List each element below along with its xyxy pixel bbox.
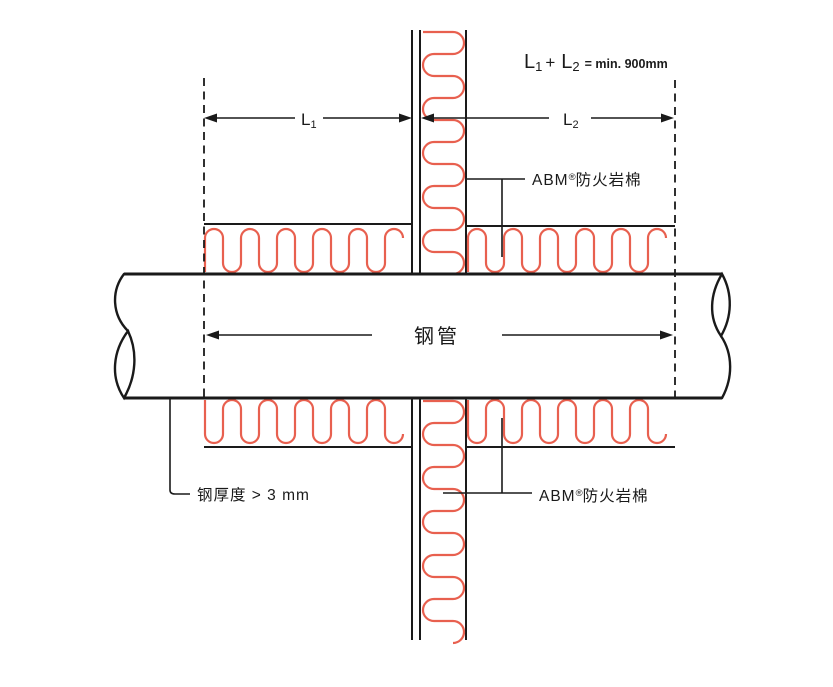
l1-label-sub: 1: [310, 119, 316, 131]
wall-insulation-squiggle-lower: [423, 401, 464, 643]
l1-arrowhead-left: [204, 114, 217, 123]
pipe-label: 钢管: [414, 325, 460, 348]
collar-squiggle-bottom-left: [205, 400, 403, 443]
fireproofing-detail-diagram: L1 L2 L1+L2= min. 900mm 钢管 ABM®防火岩棉 ABM®…: [0, 0, 833, 687]
collar-squiggle-bottom-right: [468, 400, 666, 443]
l2-arrowhead-left: [421, 114, 434, 123]
insulation-bottom-brand: ABM: [539, 488, 576, 505]
l1-label-main: L: [301, 110, 310, 129]
pipe-break-left-curve: [115, 274, 128, 331]
diagram-canvas: L1 L2 L1+L2= min. 900mm 钢管 ABM®防火岩棉 ABM®…: [0, 0, 833, 687]
insulation-label-top: ABM®防火岩棉: [532, 171, 642, 189]
insulation-bottom-name: 防火岩棉: [583, 487, 649, 505]
insulation-top-brand: ABM: [532, 172, 569, 189]
insulation-callout-bottom-leader: [443, 418, 532, 493]
insulation-callout-top-leader: [466, 179, 525, 257]
steel-thickness-label: 钢厚度 > 3 mm: [197, 486, 310, 504]
collar-squiggle-top-right: [468, 229, 666, 272]
extent-lines: [204, 78, 675, 398]
formula-term2-sub: 2: [572, 59, 579, 74]
pipe-break-right-lens: [712, 274, 730, 336]
l2-label: L2: [563, 110, 579, 131]
l2-arrowhead-right: [661, 114, 674, 123]
l1-arrowhead-right: [399, 114, 412, 123]
pipe-break-left-lens: [115, 331, 134, 398]
l2-label-sub: 2: [572, 119, 578, 131]
collar-squiggle-top-left: [205, 229, 403, 272]
dimension-l1: L1: [204, 110, 412, 131]
l2-label-main: L: [563, 110, 572, 129]
l1-label: L1: [301, 110, 317, 131]
pipe-dimension: 钢管: [206, 325, 673, 348]
pipe-dim-arrowhead-right: [660, 331, 673, 340]
pipe-dim-arrowhead-left: [206, 331, 219, 340]
formula-label: L1+L2= min. 900mm: [524, 51, 668, 74]
insulation-callout-bottom: ABM®防火岩棉: [443, 418, 649, 505]
formula-operator: +: [545, 53, 555, 72]
steel-thickness-leader: [170, 399, 190, 494]
wall-insulation-squiggle-upper: [423, 32, 464, 274]
pipe-break-right-curve: [721, 336, 730, 398]
insulation-top-reg-mark: ®: [569, 172, 576, 183]
formula-term2: L: [561, 51, 572, 73]
insulation-label-bottom: ABM®防火岩棉: [539, 487, 649, 505]
formula-result: = min. 900mm: [585, 57, 668, 71]
insulation-callout-top: ABM®防火岩棉: [466, 171, 642, 257]
insulation-top-name: 防火岩棉: [576, 171, 642, 189]
insulation-bottom-reg-mark: ®: [576, 488, 583, 499]
formula-term1-sub: 1: [535, 59, 542, 74]
formula-term1: L: [524, 51, 535, 73]
